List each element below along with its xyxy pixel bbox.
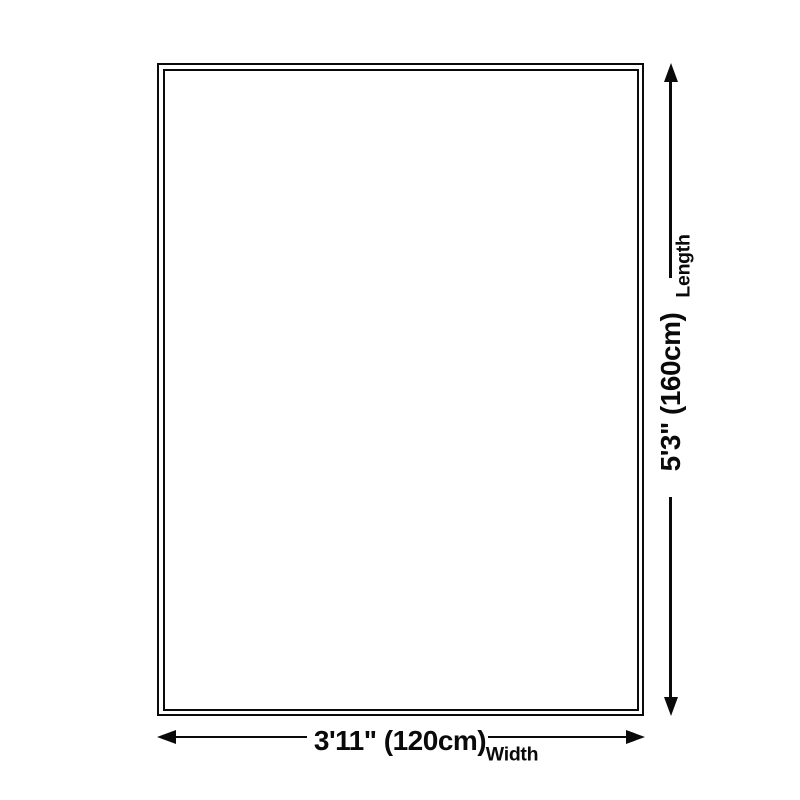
length-value-label: 5'3" (160cm) xyxy=(657,313,685,472)
arrow-down-icon xyxy=(664,697,678,716)
length-dimension-line-bottom xyxy=(669,497,672,699)
rug-outline xyxy=(157,63,644,716)
arrow-right-icon xyxy=(626,730,645,744)
width-axis-label: Width xyxy=(486,745,538,765)
length-axis-label: Length xyxy=(674,234,694,297)
width-value-label: 3'11" (120cm) xyxy=(314,727,486,755)
rug-dimension-diagram: Length 5'3" (160cm) 3'11" (120cm) Width xyxy=(0,0,800,800)
width-dimension-line-left xyxy=(174,736,307,739)
width-dimension-line-right xyxy=(488,736,628,739)
rug-inner-outline xyxy=(163,69,639,711)
